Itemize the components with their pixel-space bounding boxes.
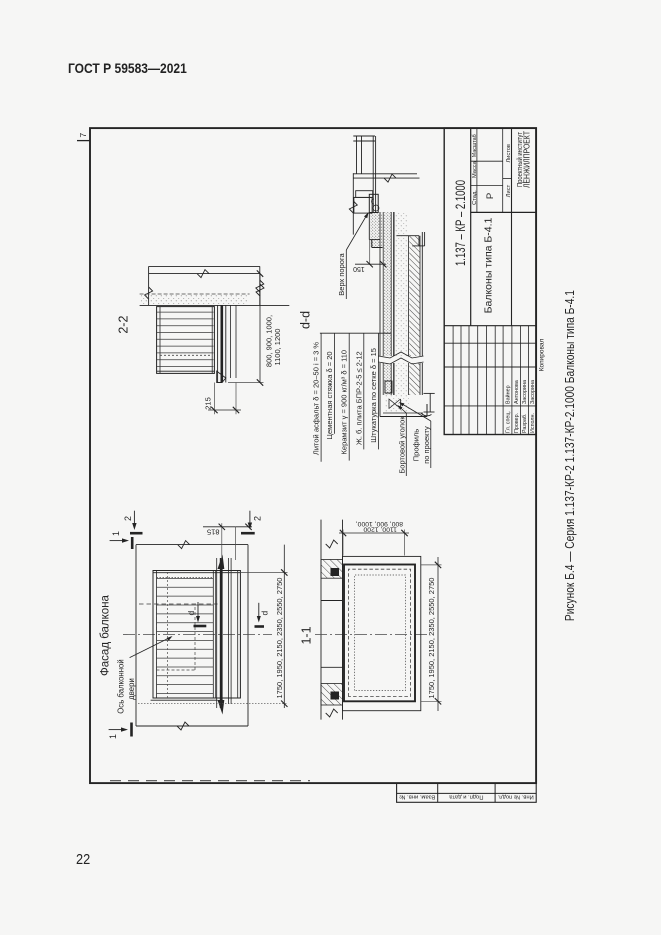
svg-text:Листов: Листов (506, 144, 512, 162)
svg-text:Засорина: Засорина (530, 380, 536, 404)
svg-text:по проекту: по проекту (422, 426, 431, 464)
svg-text:2: 2 (253, 516, 263, 521)
svg-text:Цементная стяжка δ = 20: Цементная стяжка δ = 20 (325, 352, 334, 440)
svg-text:Верх порога: Верх порога (337, 253, 346, 296)
svg-text:1: 1 (108, 734, 118, 739)
svg-text:Вайнер: Вайнер (505, 386, 512, 405)
svg-text:Профиль: Профиль (412, 429, 421, 461)
svg-text:1100, 1200: 1100, 1200 (364, 526, 398, 533)
svg-text:815: 815 (207, 528, 220, 537)
svg-text:Литой асфальт δ = 20–50 i = 3: Литой асфальт δ = 20–50 i = 3 % (312, 342, 321, 456)
svg-text:Стад.: Стад. (472, 190, 478, 205)
svg-text:Масса: Масса (472, 161, 478, 179)
svg-text:7: 7 (78, 133, 88, 138)
svg-text:Инв. № подл.: Инв. № подл. (498, 794, 534, 800)
svg-text:d-d: d-d (299, 311, 313, 329)
svg-text:Фасад балкона: Фасад балкона (100, 595, 112, 677)
svg-text:1750, 1950, 2150, 2350, 2550,: 1750, 1950, 2150, 2350, 2550, 2750 (427, 578, 436, 699)
svg-text:Масштаб: Масштаб (472, 134, 478, 158)
svg-text:Провер.: Провер. (514, 413, 520, 433)
svg-text:Р: Р (485, 193, 496, 199)
svg-text:Антонова: Антонова (514, 381, 520, 405)
svg-text:1-1: 1-1 (300, 627, 314, 645)
svg-text:Разраб.: Разраб. (522, 414, 528, 433)
svg-text:Гл. спец.: Гл. спец. (506, 411, 512, 433)
svg-text:Исполн.: Исполн. (530, 413, 536, 433)
svg-text:2: 2 (123, 516, 133, 521)
svg-text:215: 215 (204, 398, 213, 411)
svg-text:150: 150 (353, 266, 365, 273)
svg-text:d: d (260, 611, 270, 616)
svg-text:1750, 1950, 2150, 2350, 2550,: 1750, 1950, 2150, 2350, 2550, 2750 (275, 578, 284, 699)
svg-text:Рисунок Б.4 — Серия 1.137-КР-2: Рисунок Б.4 — Серия 1.137-КР-2 1.137-КР-… (563, 290, 577, 621)
svg-text:ЛЕНЖИЛПРОЕКТ: ЛЕНЖИЛПРОЕКТ (522, 131, 532, 188)
svg-text:2-2: 2-2 (117, 316, 131, 334)
svg-text:Керамзит γ = 900 кг/м³ δ = 110: Керамзит γ = 900 кг/м³ δ = 110 (340, 350, 349, 455)
svg-text:1.137 – КР – 2.1000: 1.137 – КР – 2.1000 (453, 180, 468, 266)
svg-text:1: 1 (111, 531, 121, 536)
svg-text:d: d (186, 611, 196, 616)
svg-text:Балконы типа Б-4.1: Балконы типа Б-4.1 (483, 218, 495, 314)
svg-text:1100, 1200: 1100, 1200 (273, 329, 282, 366)
svg-text:Копировал: Копировал (539, 339, 546, 372)
svg-text:двери: двери (127, 679, 136, 701)
svg-text:Бортовой уголок: Бортовой уголок (398, 416, 407, 474)
svg-text:Ж. б. плита БПР-2-5 ≤ 2-12: Ж. б. плита БПР-2-5 ≤ 2-12 (355, 352, 364, 446)
svg-text:Засорина: Засорина (522, 380, 528, 404)
svg-text:Штукатурка по сетке δ = 15: Штукатурка по сетке δ = 15 (369, 348, 378, 443)
svg-text:Лист: Лист (506, 185, 512, 198)
svg-text:Подп. и дата: Подп. и дата (449, 794, 484, 800)
svg-text:Взам. инв. №: Взам. инв. № (400, 794, 436, 800)
svg-text:Ось балконной: Ось балконной (117, 660, 126, 715)
